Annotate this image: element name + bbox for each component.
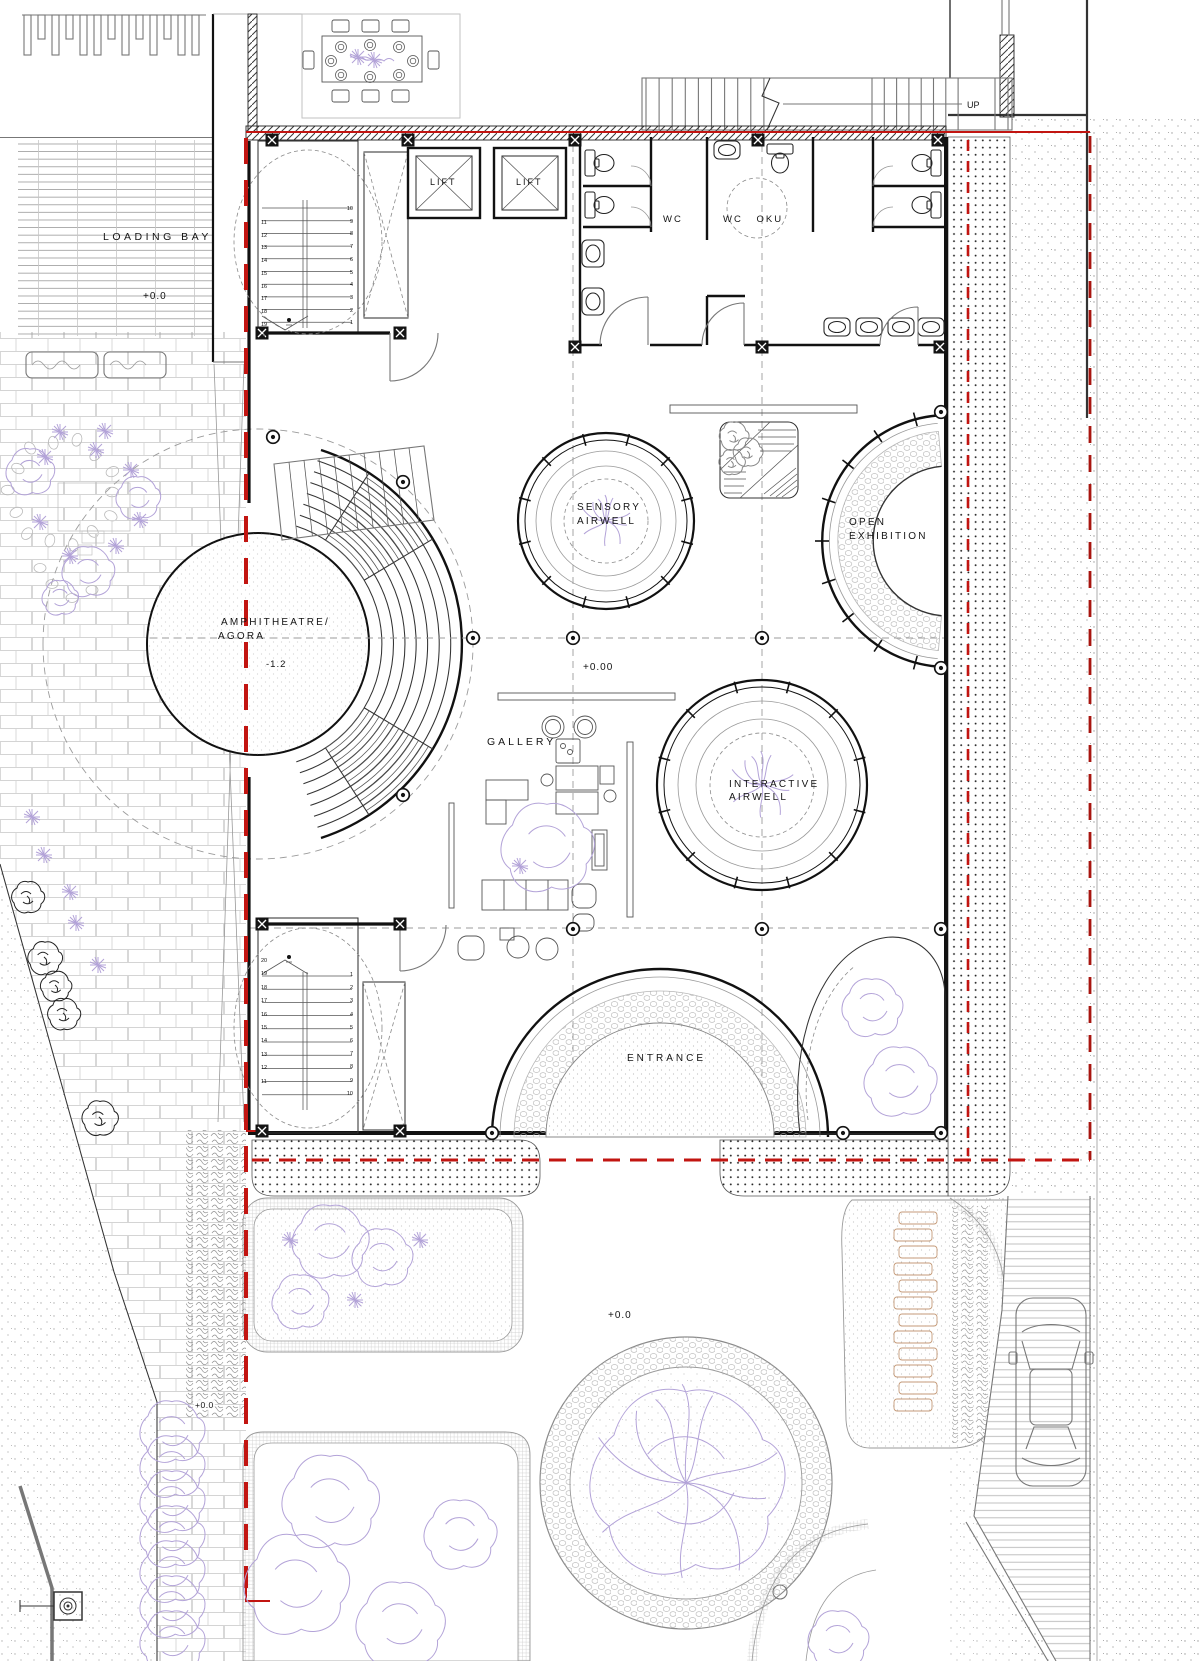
east-walkway (948, 137, 1010, 1196)
fence-comb-pattern (22, 15, 206, 55)
level-label-amphitheatre: -1.2 (266, 659, 286, 670)
stair-direction-label: UP (966, 100, 981, 110)
door-lower-core (400, 925, 446, 971)
room-label-gallery: GALLERY (487, 736, 556, 748)
room-label-amphitheatre-1: AMPHITHEATRE/ (221, 617, 330, 628)
floor-plan-drawing (0, 0, 1200, 1661)
room-label-lift-2: LIFT (516, 177, 543, 187)
room-label-entrance: ENTRANCE (627, 1053, 706, 1064)
level-label-path: +0.0 (194, 1400, 215, 1410)
room-label-sensory-2: AIRWELL (577, 516, 636, 527)
stair-numbers-upper-left: 11121314151617181920 (261, 217, 275, 344)
toilets (580, 137, 946, 345)
gallery-furniture (449, 693, 675, 960)
room-label-wc-oku: WC OKU (723, 214, 783, 225)
room-label-loading-bay: LOADING BAY (103, 231, 212, 243)
stair-numbers-lower-left: 20191817161514131211 (261, 955, 275, 1089)
door-upper-core (390, 333, 438, 381)
stair-break-line (762, 78, 779, 130)
south-apron-left (252, 1140, 540, 1196)
door-wc-oku (702, 303, 744, 345)
room-label-interactive-1: INTERACTIVE (729, 779, 819, 790)
south-apron-right (720, 1140, 948, 1196)
level-label-hall: +0.00 (583, 662, 613, 673)
room-label-sensory-1: SENSORY (577, 502, 641, 513)
room-label-lift-1: LIFT (430, 177, 457, 187)
room-label-wc: WC (663, 214, 683, 225)
external-stair (642, 78, 1012, 130)
room-label-open-2: EXHIBITION (849, 531, 928, 542)
bench (670, 405, 857, 413)
room-label-open-1: OPEN (849, 517, 886, 528)
level-label-loading-bay: +0.0 (143, 291, 167, 302)
dining-room (248, 14, 460, 132)
floor-plan-canvas: LOADING BAY +0.0 LIFT LIFT WC WC OKU UP … (0, 0, 1200, 1661)
door-wc-left (600, 297, 648, 345)
oku-turning-circle (727, 178, 787, 238)
hedge-strip (186, 1130, 246, 1418)
level-label-garden: +0.0 (608, 1310, 632, 1321)
room-label-amphitheatre-2: AGORA (218, 631, 265, 642)
hedge-column (952, 1206, 990, 1444)
stair-numbers-upper-right: 10987654321 (341, 203, 353, 330)
stair-numbers-lower-right: 12345678910 (341, 969, 353, 1101)
room-label-interactive-2: AIRWELL (729, 792, 788, 803)
